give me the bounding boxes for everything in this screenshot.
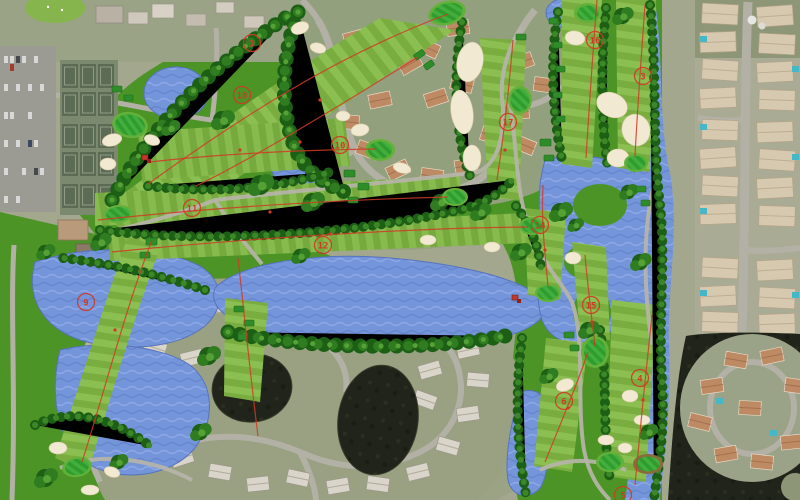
waterway-bottom-right [668,333,800,500]
golf-course-map: 1181716310111291415645 [0,0,800,500]
clubhouse-building [58,220,88,240]
svg-text:6: 6 [561,397,566,407]
svg-text:16: 16 [590,36,601,46]
svg-text:3: 3 [640,72,645,82]
svg-text:14: 14 [535,221,546,231]
svg-text:18: 18 [237,91,248,101]
svg-text:5: 5 [620,491,625,500]
svg-text:9: 9 [83,298,88,308]
svg-text:11: 11 [187,204,198,214]
svg-text:4: 4 [637,374,643,384]
svg-text:10: 10 [335,141,346,151]
svg-text:17: 17 [503,118,514,128]
svg-text:15: 15 [586,301,597,311]
svg-text:1: 1 [249,39,254,49]
parking-lot [0,46,56,212]
svg-text:12: 12 [318,241,329,251]
map-canvas: 1181716310111291415645 [0,0,800,500]
